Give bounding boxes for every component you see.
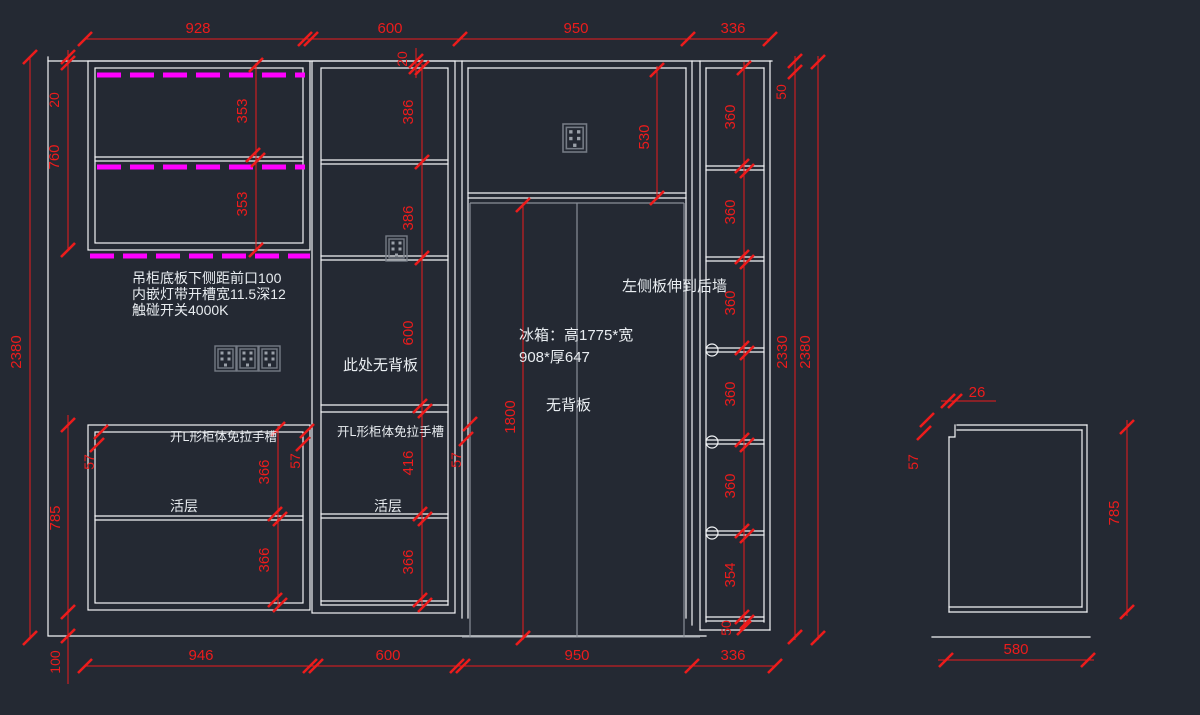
dim-side-785: 785: [1106, 500, 1123, 525]
dim-bottom-336: 336: [720, 647, 745, 664]
dimension-right-overall: 50 2330 2380: [773, 54, 825, 645]
middle-column-cabinet: [312, 61, 455, 613]
dim-reveal-57: 57: [448, 452, 464, 468]
led-note-line2: 内嵌灯带开槽宽11.5深12: [132, 286, 286, 302]
dim-shelf-353: 353: [234, 98, 251, 123]
shelf-peg-circle: [706, 527, 718, 539]
dimension-middle-column: 20 386 386 600 416 366 57: [394, 48, 477, 612]
dim-mid-600: 600: [400, 320, 417, 345]
adjustable-shelf-label-middle: 活层: [374, 498, 402, 514]
right-tall-column-cabinet: [700, 61, 770, 630]
dim-reveal-57: 57: [81, 454, 97, 470]
dim-side-580: 580: [1003, 641, 1028, 658]
power-outlet-icon: [563, 124, 587, 152]
dim-top-336: 336: [720, 20, 745, 37]
dimension-side-view: 26 57 785 580: [905, 384, 1134, 667]
shelf-peg-circle: [706, 436, 718, 448]
dim-mid-416: 416: [400, 450, 417, 475]
fridge-spec-line2: 908*厚647: [519, 349, 590, 366]
dim-hanging-760: 760: [46, 144, 63, 169]
dim-bottom-946: 946: [188, 647, 213, 664]
dimension-base-shelves: 366 366 57 57: [81, 422, 314, 612]
left-panel-to-wall-label: 左侧板伸到后墙: [622, 277, 727, 295]
dim-bottom-950: 950: [564, 647, 589, 664]
dim-shelf-366: 366: [256, 547, 273, 572]
dim-top-600: 600: [377, 20, 402, 37]
dim-shelf-366: 366: [256, 459, 273, 484]
dim-base-785: 785: [47, 505, 64, 530]
dim-right-354: 354: [722, 562, 739, 587]
dim-top-928: 928: [185, 20, 210, 37]
side-section-view: [932, 425, 1090, 637]
dim-right-360: 360: [722, 381, 739, 406]
base-cabinet-left: [88, 425, 310, 610]
fridge-appliance-outline: [462, 203, 700, 637]
dim-top-reveal-50: 50: [773, 84, 789, 100]
dim-side-26: 26: [969, 384, 986, 401]
dimension-left-overall: 2380: [8, 50, 37, 645]
cad-canvas[interactable]: 928 600 950 336 946 600 950 336 2380 20 …: [0, 0, 1200, 715]
shelf-peg-circle: [706, 344, 718, 356]
l-groove-label-middle: 开L形柜体免拉手槽: [337, 424, 444, 439]
dim-wall-gap-20: 20: [46, 92, 62, 108]
dim-bottom-600: 600: [375, 647, 400, 664]
dim-fridge-1800: 1800: [502, 400, 519, 433]
power-outlet-icon-triple: [215, 346, 280, 371]
cad-viewport: 928 600 950 336 946 600 950 336 2380 20 …: [0, 0, 1200, 715]
dim-top-950: 950: [563, 20, 588, 37]
dim-side-57: 57: [905, 454, 921, 470]
dim-toekick-100: 100: [47, 650, 63, 674]
dim-mid-366: 366: [400, 549, 417, 574]
dim-interior-2330: 2330: [774, 335, 791, 368]
dim-fridge-top-530: 530: [636, 124, 653, 149]
dim-gap-20: 20: [394, 51, 410, 67]
dim-right-360: 360: [722, 104, 739, 129]
no-back-panel-label: 无背板: [546, 396, 591, 414]
dim-reveal-57: 57: [287, 453, 303, 469]
dimension-row-top: 928 600 950 336: [78, 20, 777, 46]
l-groove-label-left: 开L形柜体免拉手槽: [170, 429, 277, 444]
dim-right-360: 360: [722, 199, 739, 224]
dim-mid-386: 386: [400, 205, 417, 230]
dim-overall-2380: 2380: [8, 335, 25, 368]
power-outlet-icon: [386, 236, 407, 261]
dim-right-360: 360: [722, 473, 739, 498]
dimension-left-chain: 20 760 785 100: [46, 50, 75, 684]
led-note-line1: 吊柜底板下侧距前口100: [132, 270, 282, 286]
adjustable-shelf-label-left: 活层: [170, 498, 198, 514]
dim-right-base-50: 50: [718, 620, 734, 636]
dim-mid-386: 386: [400, 99, 417, 124]
dimension-row-bottom: 946 600 950 336: [78, 647, 782, 673]
no-back-panel-here-label: 此处无背板: [343, 356, 418, 374]
dim-overall-2380: 2380: [797, 335, 814, 368]
led-note-line3: 触碰开关4000K: [132, 302, 229, 318]
hanging-cabinet-left: [88, 61, 310, 256]
fridge-spec-line1: 冰箱：高1775*宽: [519, 327, 633, 344]
text-annotations: 吊柜底板下侧距前口100 内嵌灯带开槽宽11.5深12 触碰开关4000K 此处…: [132, 270, 727, 514]
dim-shelf-353: 353: [234, 191, 251, 216]
